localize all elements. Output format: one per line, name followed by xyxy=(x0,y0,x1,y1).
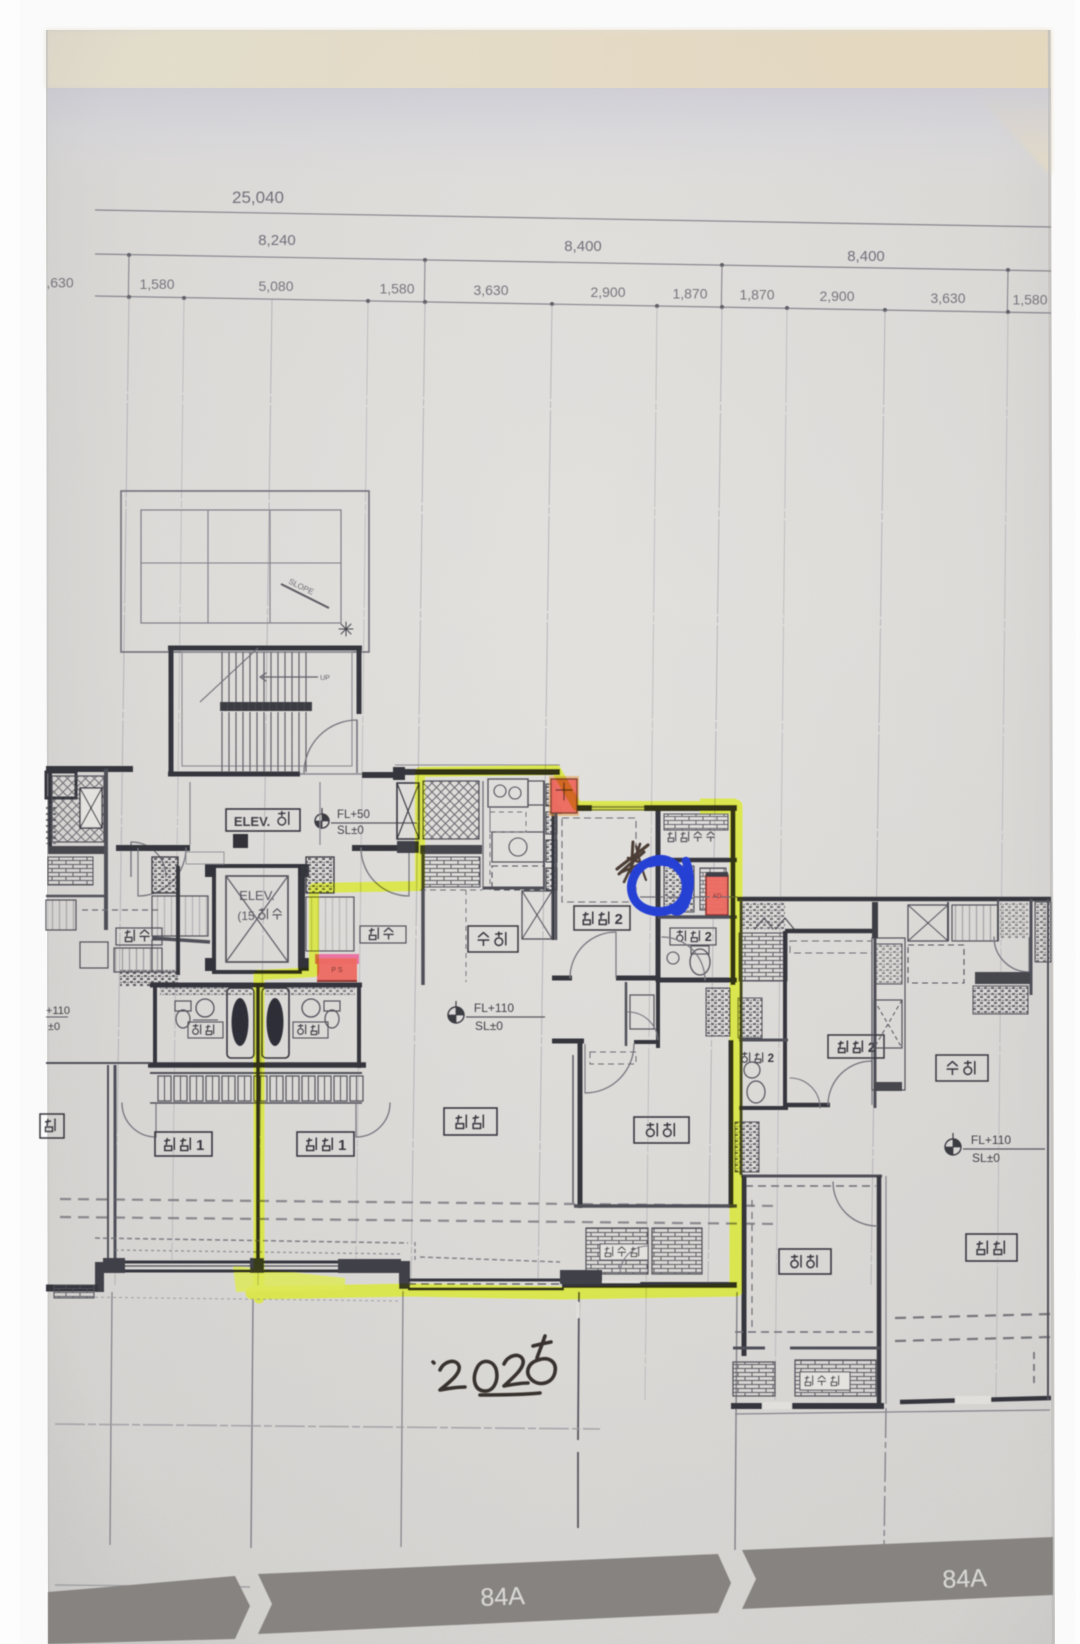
svg-text:84A: 84A xyxy=(942,1564,988,1594)
svg-text:84A: 84A xyxy=(480,1582,526,1612)
